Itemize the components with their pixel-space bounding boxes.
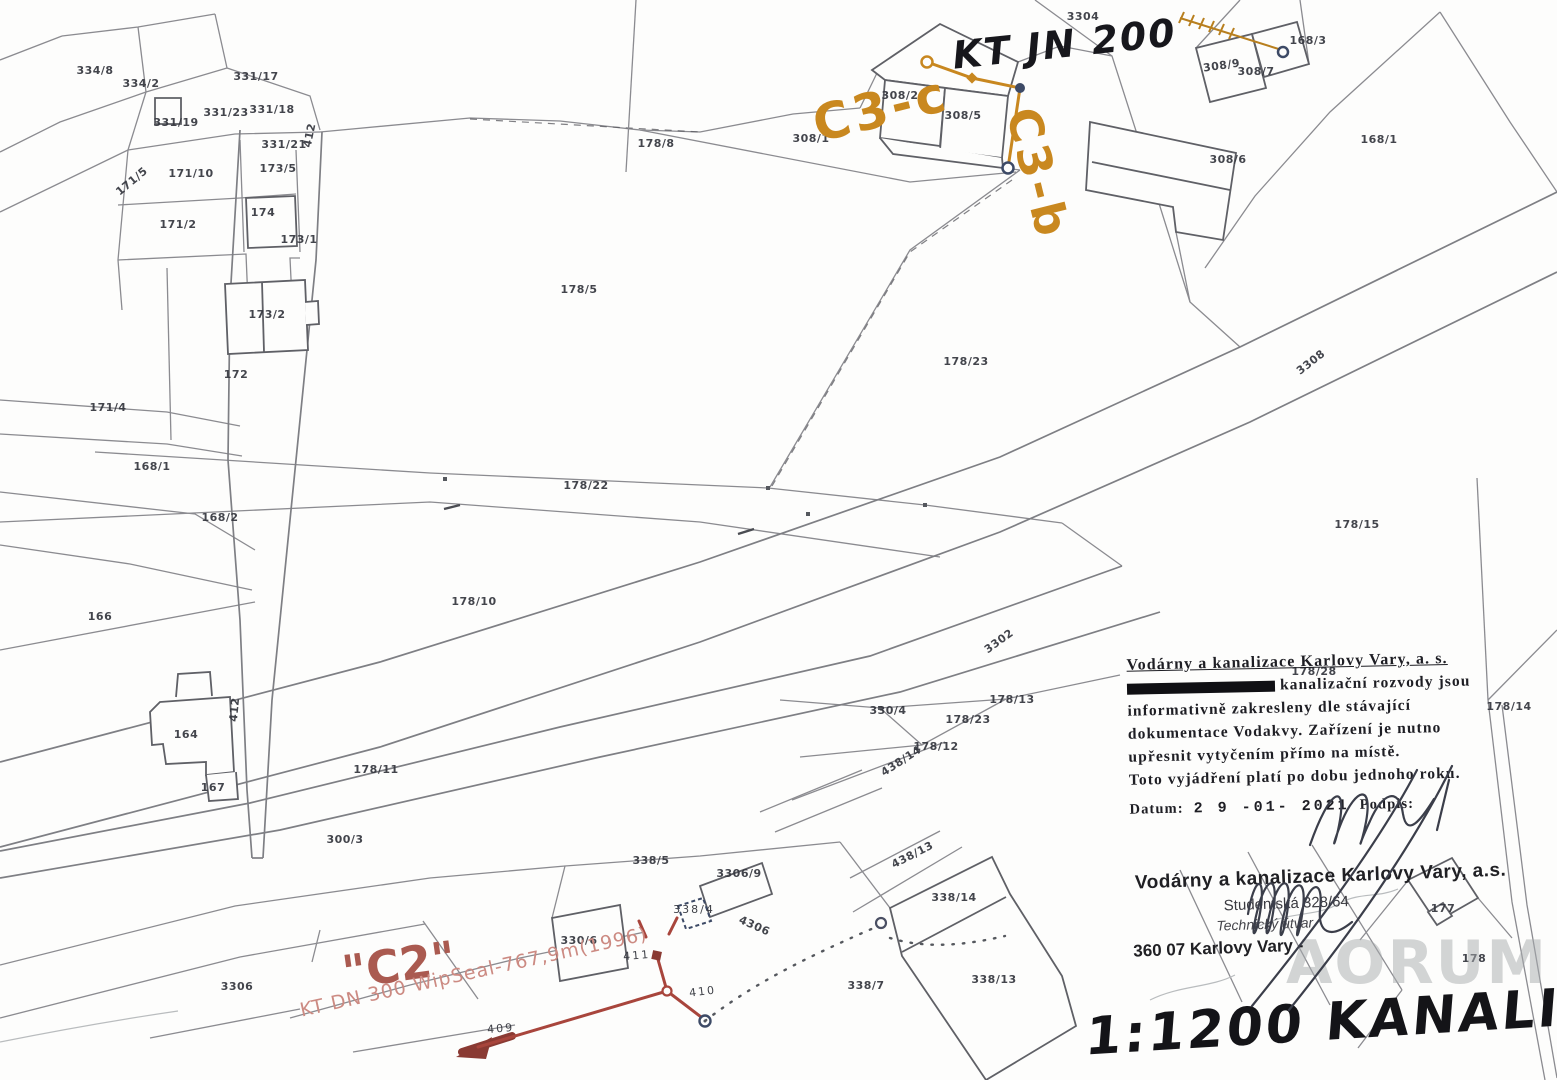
parcel-label: 331/23 [203,106,248,119]
parcel-label: 3308 [1294,347,1328,377]
parcel-label: 334/2 [122,77,159,90]
parcel-label: 178/23 [945,713,990,726]
stamp-line: kanalizační rozvody jsou [1280,673,1471,694]
parcel-label: 178/23 [943,355,988,368]
parcel-label: 178/15 [1334,518,1379,531]
parcel-label: 3302 [982,626,1016,656]
stamp-line: Toto vyjádření platí po dobu jednoho rok… [1129,765,1461,789]
parcel-label: 411 [623,948,651,963]
parcel-label: 331/21 [261,138,306,151]
parcel-label: 168/2 [201,511,238,524]
parcel-label: 412 [301,122,319,149]
boundary-point-markers [443,477,927,710]
parcel-label: 173/2 [248,308,285,321]
parcel-label: 409 [487,1021,515,1036]
parcel-label: 300/3 [326,833,363,846]
parcel-label: 308/7 [1237,65,1274,78]
parcel-label: 178/13 [989,693,1034,706]
parcel-label: 3306 [221,980,254,993]
parcel-label: 3306/9 [716,867,761,880]
parcel-label: 178/8 [637,137,674,150]
parcel-label: 167 [201,781,225,794]
parcel-label: 338/14 [931,891,976,904]
parcel-label: 178/10 [451,595,496,608]
parcel-label: 171/4 [89,401,126,414]
sewer-line-red [456,918,886,1059]
cadastral-map-page: 334/8334/2331/17331/19331/23331/18331/21… [0,0,1557,1080]
manhole-node-icon [1016,84,1025,93]
parcel-label: 331/19 [153,116,198,129]
parcel-label: 168/1 [133,460,170,473]
parcel-label: 166 [88,610,112,623]
parcel-label: 334/8 [76,64,113,77]
parcel-label: 178/14 [1486,700,1531,713]
parcel-label: 331/17 [233,70,278,83]
parcel-label: 174 [251,206,275,219]
manhole-node-icon [651,950,662,961]
parcel-label: 173/1 [280,233,317,246]
parcel-label: 330/4 [869,704,906,717]
company-address-stamp: Vodárny a kanalizace Karlovy Vary, a.s. … [1135,860,1509,962]
stamp-line: informativně zakresleny dle stávající [1127,697,1411,720]
parcel-label: 171/10 [168,167,213,180]
stamp-line: upřesnit vytyčením přímo na místě. [1128,743,1400,766]
parcel-label: 338/5 [632,854,669,867]
parcel-label: 171/5 [113,164,150,198]
parcel-label: 178/22 [563,479,608,492]
manhole-node-icon [876,918,886,928]
redacted-text-bar [1127,681,1275,695]
parcel-label: 168/3 [1289,34,1326,47]
parcel-label: 164 [174,728,198,741]
parcel-label: 4306 [737,913,772,938]
parcel-label: 178/11 [353,763,398,776]
parcel-label: 438/13 [889,839,935,871]
parcel-label: 173/5 [259,162,296,175]
parcel-label: 308/6 [1209,153,1246,166]
parcel-label: 331/18 [249,103,294,116]
stamp-line: dokumentace Vodakvy. Zařízení je nutno [1128,719,1442,743]
water-company-statement-stamp: Vodárny a kanalizace Karlovy Vary, a. s.… [1126,646,1485,821]
parcel-label: 338/4 [673,903,715,916]
date-stamp-value: 2 9 -01- 2021 [1193,797,1349,817]
parcel-label: 412 [227,697,242,723]
parcel-label: 171/2 [159,218,196,231]
parcel-label: 178/5 [560,283,597,296]
date-label: Datum: [1129,801,1183,818]
manhole-node-icon [1278,47,1288,57]
manhole-node-icon [663,987,672,996]
parcel-label: 338/7 [847,979,884,992]
signature-label: Podpis: [1359,796,1414,813]
parcel-label: 410 [688,983,716,999]
parcel-label: 168/1 [1360,133,1397,146]
parcel-label: 172 [224,368,248,381]
parcel-label: 338/13 [971,973,1016,986]
